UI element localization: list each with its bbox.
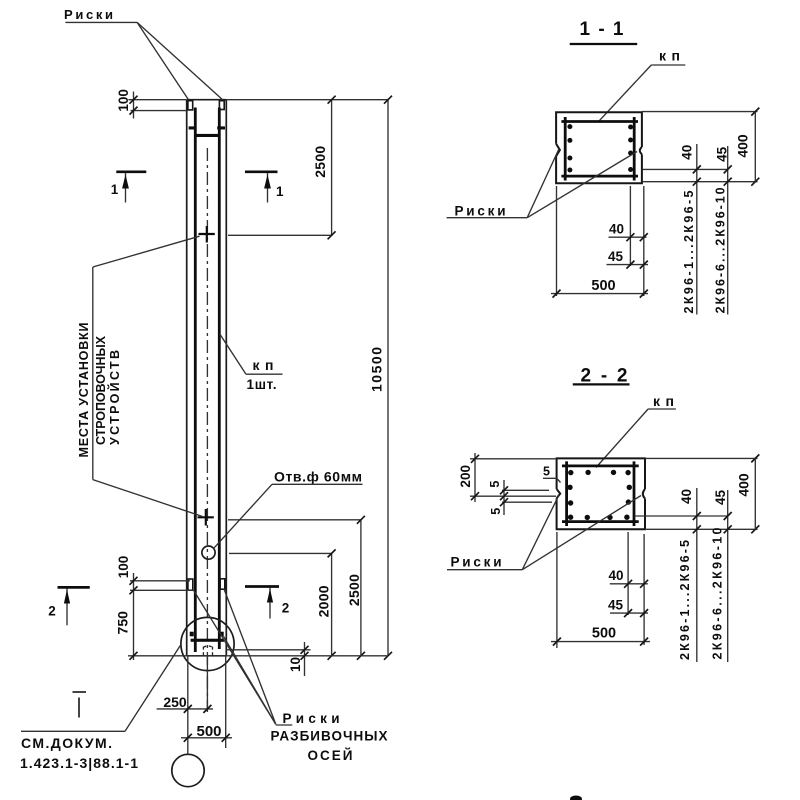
svg-text:10500: 10500 — [368, 347, 384, 392]
svg-text:40: 40 — [679, 489, 694, 504]
svg-text:2500: 2500 — [312, 146, 328, 178]
svg-text:5: 5 — [489, 508, 503, 515]
svg-text:1 - 1: 1 - 1 — [580, 19, 624, 40]
svg-text:Отв.ф 60мм: Отв.ф 60мм — [274, 469, 362, 485]
svg-text:Риски: Риски — [451, 555, 502, 570]
svg-text:500: 500 — [196, 723, 221, 740]
svg-text:Риски: Риски — [283, 711, 340, 726]
svg-text:250: 250 — [163, 694, 187, 710]
svg-text:2: 2 — [48, 604, 56, 619]
svg-text:1шт.: 1шт. — [247, 377, 277, 392]
svg-text:2К96-1...2К96-5: 2К96-1...2К96-5 — [682, 190, 696, 313]
svg-text:2К96-6...2К96-10: 2К96-6...2К96-10 — [713, 187, 727, 313]
svg-text:5: 5 — [543, 465, 550, 479]
svg-text:УСТРОЙСТВ: УСТРОЙСТВ — [107, 350, 122, 445]
svg-text:5: 5 — [488, 481, 502, 488]
svg-text:2: 2 — [282, 601, 290, 616]
svg-text:1: 1 — [111, 182, 119, 197]
svg-text:СМ.ДОКУМ.: СМ.ДОКУМ. — [21, 735, 112, 751]
svg-text:1.423.1-3|88.1-1: 1.423.1-3|88.1-1 — [20, 755, 138, 771]
svg-text:45: 45 — [608, 598, 624, 613]
svg-text:500: 500 — [591, 278, 615, 294]
svg-text:МЕСТА УСТАНОВКИ: МЕСТА УСТАНОВКИ — [77, 322, 91, 457]
svg-text:Риски: Риски — [64, 7, 113, 22]
svg-text:40: 40 — [608, 568, 623, 583]
svg-text:СТРОПОВОЧНЫХ: СТРОПОВОЧНЫХ — [94, 335, 108, 445]
svg-text:2К96-6...2К96-10: 2К96-6...2К96-10 — [711, 527, 725, 659]
svg-text:750: 750 — [115, 611, 131, 635]
svg-text:400: 400 — [734, 134, 750, 158]
svg-text:400: 400 — [735, 473, 751, 497]
svg-text:10: 10 — [288, 657, 303, 672]
svg-text:1: 1 — [276, 184, 284, 199]
svg-text:2000: 2000 — [315, 585, 331, 617]
svg-text:45: 45 — [608, 249, 624, 264]
svg-text:200: 200 — [458, 465, 473, 488]
svg-text:45: 45 — [715, 146, 730, 162]
svg-text:500: 500 — [592, 626, 616, 642]
svg-text:45: 45 — [713, 490, 728, 506]
svg-text:40: 40 — [679, 145, 694, 160]
svg-text:Риски: Риски — [455, 204, 506, 219]
svg-text:2К96-1...2К96-5: 2К96-1...2К96-5 — [678, 540, 692, 660]
svg-text:100: 100 — [116, 556, 131, 579]
svg-text:40: 40 — [609, 222, 624, 237]
svg-text:РАЗБИВОЧНЫХ: РАЗБИВОЧНЫХ — [271, 729, 388, 744]
svg-text:100: 100 — [116, 89, 131, 112]
svg-text:2500: 2500 — [346, 574, 362, 606]
